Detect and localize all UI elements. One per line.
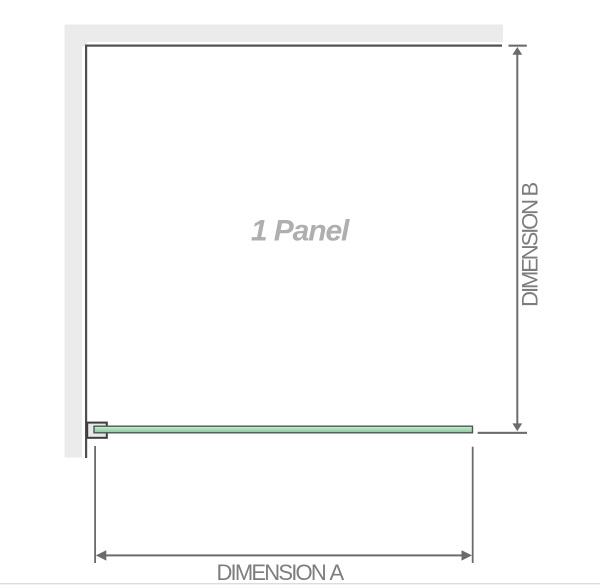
svg-text:1 Panel: 1 Panel (251, 215, 350, 248)
svg-text:DIMENSIONB: DIMENSIONB (517, 183, 542, 307)
svg-text:DIMENSIONA: DIMENSIONA (216, 560, 344, 585)
